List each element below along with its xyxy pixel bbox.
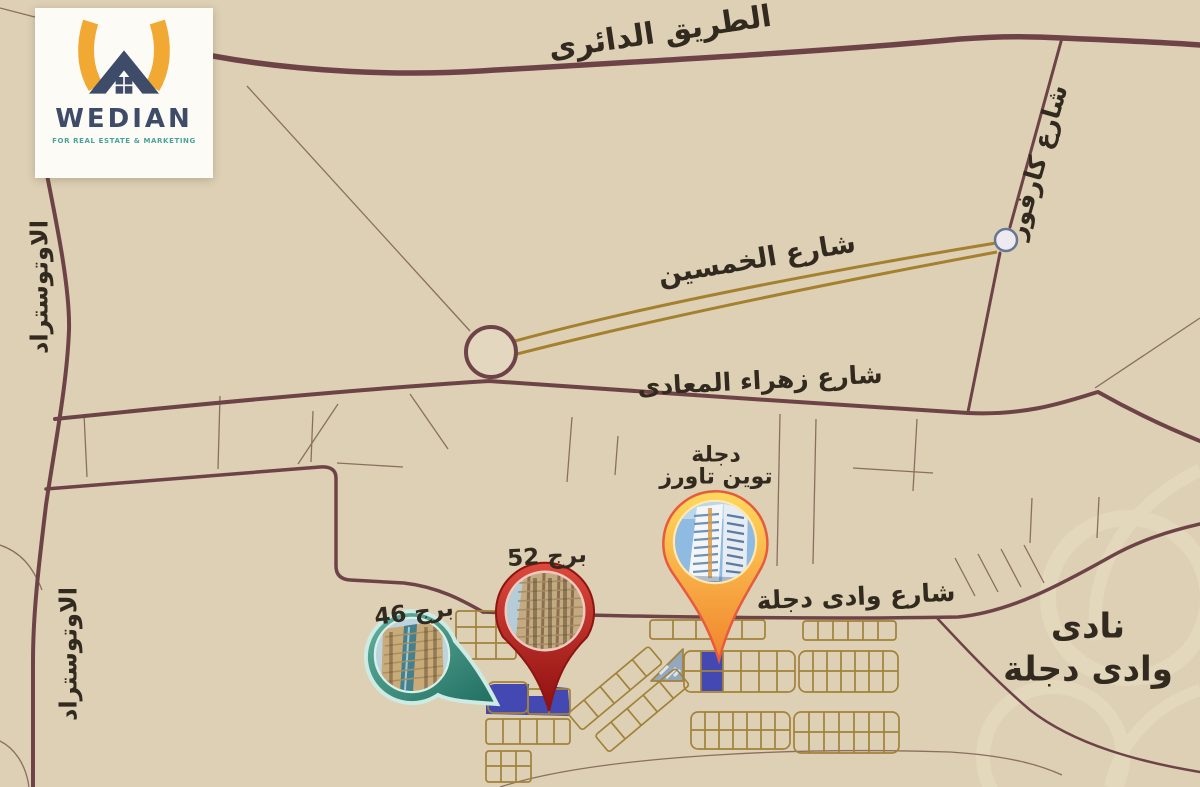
logo-name: WEDIAN <box>55 104 193 134</box>
road-zahraa <box>55 381 1200 441</box>
roundabout-main <box>466 327 516 377</box>
logo-card: WEDIAN FOR REAL ESTATE & MARKETING <box>35 8 213 178</box>
label-autostrad-lower: الاوتوستراد <box>56 587 81 721</box>
pin-degla-twin-towers-icon <box>663 491 767 660</box>
club-name-line1: نادى <box>1003 606 1173 649</box>
logo-tagline: FOR REAL ESTATE & MARKETING <box>52 137 196 145</box>
label-pin-tower-52: برج 52 <box>507 543 588 571</box>
pin-twin-label-line1: دجلة <box>659 445 772 467</box>
wedian-logo-icon <box>49 12 199 102</box>
club-name-line2: وادى دجلة <box>1003 648 1173 691</box>
label-wadi-degla-club: نادى وادى دجلة <box>1003 606 1173 691</box>
label-autostrad-upper: الاوتوستراد <box>27 220 52 354</box>
logo-window-icon <box>116 77 133 94</box>
label-pin-degla-twin-towers: دجلة توين تاورز <box>659 445 772 490</box>
map-canvas: الطريق الدائرى شارع كارفور شارع الخمسين … <box>0 0 1200 787</box>
pin-twin-label-line2: توين تاورز <box>659 467 772 489</box>
road-inner-west <box>46 467 483 612</box>
